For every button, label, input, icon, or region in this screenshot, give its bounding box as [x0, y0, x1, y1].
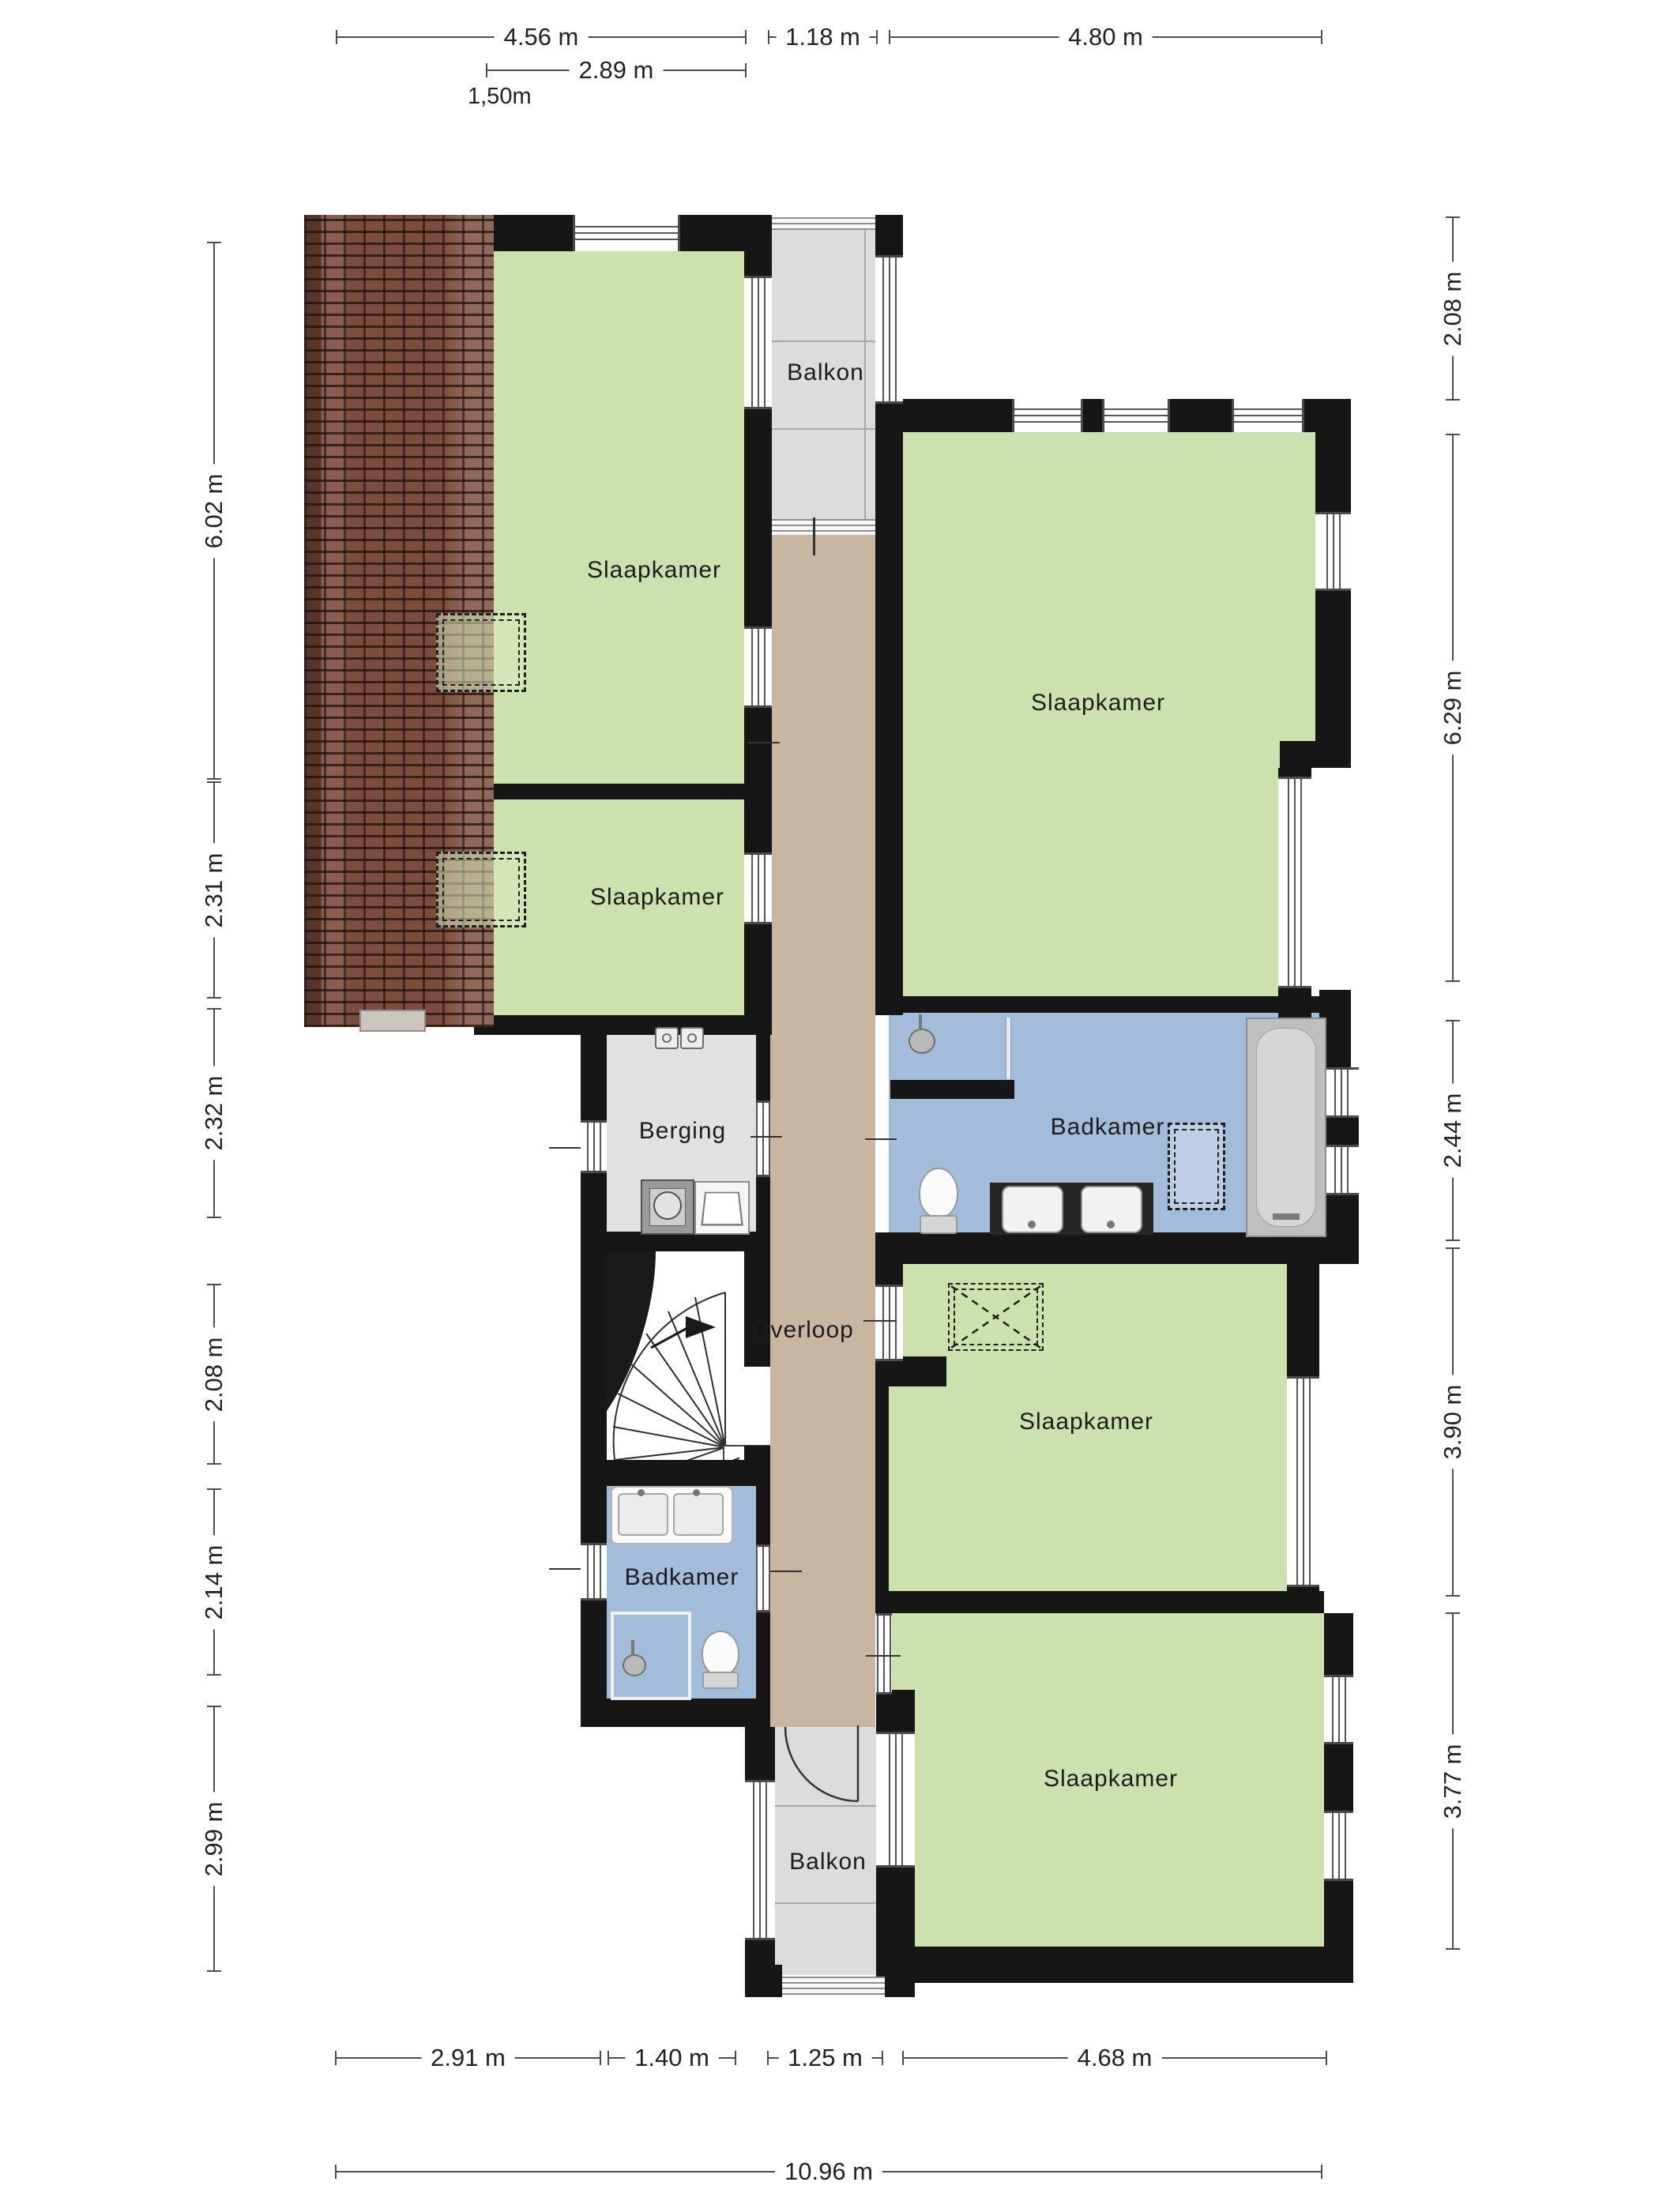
dim-line-left-2: 2.31 m: [213, 782, 215, 998]
dim-label: 2.31 m: [200, 843, 228, 937]
door-tick: [748, 742, 780, 743]
wall: [1324, 1613, 1353, 1675]
window: [1232, 399, 1304, 432]
floorplan-canvas: Slaapkamer Slaapkamer Slaapkamer Slaapka…: [0, 0, 1659, 2212]
window-tick: [549, 1147, 581, 1149]
dim-label: 2.91 m: [421, 2044, 515, 2072]
wall: [1324, 1740, 1353, 1811]
dim-line-top-1: 4.56 m: [337, 36, 746, 38]
dim-label: 3.90 m: [1439, 1375, 1467, 1469]
dim-line-left-1: 6.02 m: [213, 243, 215, 779]
shower-enclosure: [611, 1612, 691, 1700]
balcony-railing: [782, 1977, 885, 1996]
shower-head-icon: [623, 1654, 646, 1676]
wall: [875, 1356, 889, 1613]
dim-label: 2.99 m: [200, 1792, 228, 1886]
dim-line-bottom-4: 4.68 m: [903, 2057, 1326, 2059]
room-label-badkamer: Badkamer: [625, 1564, 739, 1591]
dim-line-right-1: 2.08 m: [1452, 217, 1454, 400]
wall: [875, 215, 903, 255]
balcony-divider-line: [775, 1902, 885, 1904]
dim-label: 1.40 m: [625, 2044, 719, 2072]
dim-line-right-3: 2.44 m: [1452, 1021, 1454, 1240]
dim-label: 1.18 m: [776, 23, 870, 51]
washing-machine-icon: [641, 1179, 694, 1235]
window: [745, 1780, 775, 1940]
dim-line-bottom-3: 1.25 m: [768, 2057, 882, 2059]
door-swing-arc: [770, 1722, 873, 1817]
bathtub-faucet: [1273, 1213, 1300, 1220]
wall: [1280, 741, 1351, 768]
dim-label: 2.08 m: [200, 1327, 228, 1421]
roof-edge-step: [359, 1010, 426, 1032]
faucet-dot: [1107, 1221, 1115, 1228]
window: [1012, 399, 1083, 432]
utility-meter-icon: [655, 1027, 679, 1049]
wall: [1323, 1113, 1359, 1145]
window: [1324, 1811, 1353, 1881]
wall: [903, 399, 1012, 432]
wall: [581, 1596, 607, 1698]
dim-line-top-4: 2.89 m: [487, 70, 746, 71]
wall: [474, 784, 770, 799]
window: [1287, 1376, 1319, 1587]
balcony-divider-line: [864, 230, 866, 519]
dim-label: 4.80 m: [1059, 23, 1153, 51]
window-tick: [549, 1568, 581, 1570]
wall: [875, 1264, 903, 1285]
faucet-dot: [1028, 1221, 1036, 1228]
wall: [875, 399, 903, 1015]
wall: [581, 1698, 770, 1727]
wall: [875, 1591, 1324, 1613]
washer-drum: [653, 1191, 682, 1220]
wall: [581, 1015, 607, 1120]
door: [876, 1613, 892, 1695]
room-overloop: [770, 535, 875, 1727]
balcony-divider-line: [772, 340, 875, 342]
window: [1315, 512, 1351, 591]
dim-line-bottom-2: 1.40 m: [608, 2057, 735, 2059]
door: [744, 626, 772, 708]
window: [1102, 399, 1170, 432]
laundry-basket-icon: [694, 1181, 750, 1235]
shower-glass-panel: [1006, 1018, 1011, 1079]
skylight-dashed-box: [1168, 1123, 1225, 1210]
window: [1323, 1145, 1359, 1195]
wall: [1315, 399, 1351, 512]
window: [1278, 777, 1311, 988]
toilet-tank: [702, 1672, 739, 1689]
dim-line-bottom-total: 10.96 m: [336, 2171, 1322, 2172]
wall: [1287, 1264, 1319, 1376]
laundry-basket-shape: [701, 1192, 743, 1226]
exterior-notch: [1311, 768, 1321, 996]
wall: [890, 1080, 1014, 1099]
dim-label: 10.96 m: [775, 2157, 882, 2186]
wall: [744, 1251, 770, 1367]
skylight-dashed-box: [436, 852, 526, 927]
shower-stand: [631, 1640, 634, 1656]
dim-label: 3.77 m: [1439, 1734, 1467, 1828]
room-label-berging: Berging: [639, 1118, 726, 1145]
door-tick: [750, 1136, 782, 1138]
skylight-x-box: [948, 1283, 1044, 1351]
toilet-icon: [702, 1631, 739, 1676]
shower-head-icon: [908, 1029, 935, 1054]
faucet-dot: [638, 1489, 645, 1496]
wall: [581, 1488, 607, 1543]
door-tick: [865, 1138, 897, 1140]
wall: [745, 1965, 782, 1997]
dim-label: 2.14 m: [200, 1535, 228, 1629]
wall: [744, 404, 772, 535]
bathtub-inner: [1256, 1028, 1316, 1227]
window: [581, 1120, 607, 1173]
room-label-overloop: Overloop: [751, 1317, 854, 1344]
dim-line-right-4: 3.90 m: [1452, 1248, 1454, 1596]
wall: [581, 1460, 770, 1486]
dim-note: 1,50m: [468, 84, 532, 110]
wall: [744, 535, 772, 626]
room-label-balkon: Balkon: [787, 359, 864, 386]
window: [1323, 1067, 1359, 1118]
skylight-dashed-box: [436, 613, 526, 692]
room-label-slaapkamer: Slaapkamer: [1031, 690, 1165, 717]
wall: [1315, 586, 1351, 741]
wall: [1278, 768, 1311, 777]
dim-line-left-5: 2.14 m: [213, 1489, 215, 1675]
wall: [756, 1015, 770, 1100]
dim-label: 2.08 m: [1439, 261, 1467, 355]
room-label-balkon: Balkon: [789, 1849, 867, 1875]
toilet-icon: [919, 1168, 958, 1218]
bathtub-icon: [1246, 1018, 1326, 1237]
wall: [875, 1232, 1359, 1264]
balcony-divider-line: [772, 428, 875, 430]
dim-label: 6.02 m: [200, 464, 228, 558]
window: [1324, 1675, 1353, 1744]
room-label-slaapkamer: Slaapkamer: [1044, 1766, 1178, 1793]
wall: [756, 1608, 770, 1698]
door: [756, 1544, 770, 1612]
utility-meter-icon: [680, 1027, 704, 1049]
window: [581, 1543, 607, 1601]
room-label-slaapkamer: Slaapkamer: [590, 884, 724, 911]
dim-line-top-2: 1.18 m: [769, 36, 877, 38]
window: [744, 852, 772, 924]
dim-label: 2.32 m: [200, 1066, 228, 1161]
dim-line-left-3: 2.32 m: [213, 1009, 215, 1217]
dim-label: 1.25 m: [778, 2044, 872, 2072]
room-label-badkamer: Badkamer: [1051, 1114, 1165, 1141]
skylight-x-lines: [950, 1285, 1042, 1349]
shower-hose: [919, 1014, 922, 1030]
wall: [756, 1486, 770, 1544]
window: [875, 255, 903, 404]
dim-line-right-2: 6.29 m: [1452, 434, 1454, 981]
dim-label: 4.68 m: [1068, 2044, 1162, 2072]
wall: [876, 1690, 915, 1732]
door: [875, 1285, 903, 1361]
dim-label: 2.89 m: [570, 56, 664, 85]
dim-line-right-5: 3.77 m: [1452, 1613, 1454, 1949]
dim-line-bottom-1: 2.91 m: [336, 2057, 600, 2059]
balcony-door-leaf: [813, 517, 815, 555]
faucet-dot: [693, 1489, 700, 1496]
door-tick: [866, 1655, 901, 1657]
wall: [744, 215, 772, 276]
sink-icon: [673, 1493, 724, 1536]
dim-label: 2.44 m: [1439, 1084, 1467, 1178]
dim-line-top-3: 4.80 m: [890, 36, 1322, 38]
wall: [1165, 399, 1232, 432]
vanity-counter: [990, 1183, 1153, 1235]
sink-icon: [618, 1493, 668, 1536]
balcony-railing: [772, 519, 875, 535]
window: [876, 1732, 915, 1868]
wall: [875, 996, 1323, 1013]
wall: [876, 1947, 1353, 1983]
door-tick: [863, 1320, 897, 1322]
room-label-slaapkamer: Slaapkamer: [1019, 1409, 1153, 1435]
dim-label: 4.56 m: [495, 23, 589, 51]
wall: [581, 1168, 607, 1488]
toilet-tank: [920, 1215, 957, 1234]
dim-line-left-6: 2.99 m: [213, 1706, 215, 1971]
window: [744, 276, 772, 409]
door-tick: [770, 1571, 802, 1572]
dim-line-left-4: 2.08 m: [213, 1285, 215, 1464]
wall: [885, 1965, 915, 1997]
room-slaapkamer-top-left: [483, 251, 744, 784]
wall: [744, 703, 772, 852]
balcony-railing: [772, 217, 875, 230]
vanity-counter: [611, 1486, 733, 1544]
wall: [474, 1015, 770, 1035]
door: [756, 1100, 770, 1177]
dim-label: 6.29 m: [1439, 661, 1467, 755]
room-label-slaapkamer: Slaapkamer: [587, 557, 721, 584]
wall: [745, 1727, 775, 1780]
window: [573, 215, 680, 251]
